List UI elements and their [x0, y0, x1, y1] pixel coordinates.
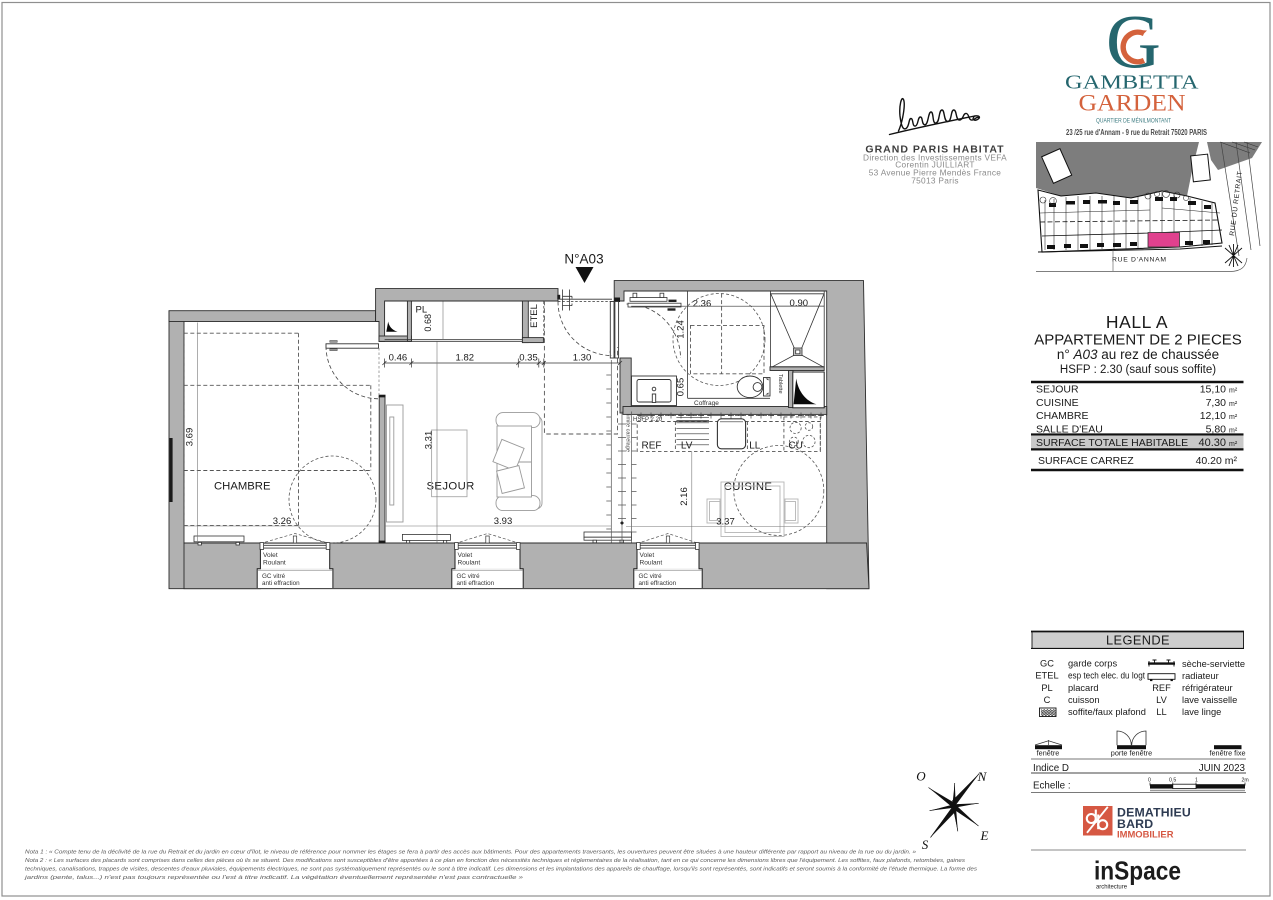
svg-text:esp tech elec. du logt: esp tech elec. du logt — [1068, 671, 1145, 681]
svg-text:SURFACE TOTALE HABITABLE: SURFACE TOTALE HABITABLE — [1036, 437, 1188, 449]
svg-text:LL: LL — [749, 441, 761, 452]
svg-text:0.46: 0.46 — [389, 353, 408, 364]
svg-text:0: 0 — [1148, 778, 1151, 784]
svg-text:LEGENDE: LEGENDE — [1106, 633, 1170, 648]
svg-text:CUISINE: CUISINE — [724, 481, 773, 493]
svg-text:soffite/faux plafond: soffite/faux plafond — [1068, 707, 1146, 717]
svg-text:RUE D'ANNAM: RUE D'ANNAM — [1112, 257, 1167, 264]
svg-text:limite carrelage: limite carrelage — [625, 414, 631, 452]
svg-text:ETEL: ETEL — [1035, 671, 1058, 681]
svg-text:0.35: 0.35 — [519, 353, 538, 364]
svg-text:REF: REF — [642, 441, 662, 452]
svg-text:techniques, canalisations, tra: techniques, canalisations, trappes de vi… — [25, 867, 977, 873]
svg-text:Volet: Volet — [263, 552, 278, 559]
svg-text:SURFACE CARREZ: SURFACE CARREZ — [1038, 455, 1134, 467]
svg-text:3.93: 3.93 — [494, 516, 513, 527]
svg-text:cuisson: cuisson — [1068, 695, 1100, 705]
svg-text:Volet: Volet — [640, 552, 655, 559]
svg-text:LV: LV — [1156, 695, 1167, 705]
svg-text:Echelle :: Echelle : — [1033, 781, 1071, 792]
svg-text:porte fenêtre: porte fenêtre — [1111, 749, 1152, 758]
svg-text:réfrigérateur: réfrigérateur — [1182, 683, 1233, 693]
svg-text:m²: m² — [1229, 401, 1238, 408]
svg-text:15,10: 15,10 — [1200, 384, 1226, 396]
svg-text:40.20 m²: 40.20 m² — [1196, 455, 1238, 467]
svg-text:GC vitré: GC vitré — [639, 573, 663, 580]
svg-text:2.16: 2.16 — [679, 487, 690, 506]
svg-text:placard: placard — [1068, 683, 1099, 693]
svg-text:JUIN 2023: JUIN 2023 — [1199, 763, 1246, 774]
svg-text:0.65: 0.65 — [675, 378, 686, 397]
svg-text:N°A03: N°A03 — [564, 252, 603, 267]
svg-text:anti effraction: anti effraction — [639, 580, 677, 587]
svg-text:Nota 2 : « Les surfaces des pl: Nota 2 : « Les surfaces des placards son… — [25, 858, 965, 864]
svg-text:Roulant: Roulant — [263, 559, 286, 566]
svg-text:1.24: 1.24 — [675, 320, 686, 339]
svg-text:GC: GC — [1040, 658, 1054, 668]
svg-text:7,30: 7,30 — [1206, 397, 1227, 409]
svg-text:m²: m² — [1229, 427, 1238, 434]
svg-text:anti effraction: anti effraction — [457, 580, 495, 587]
svg-text:ETEL: ETEL — [529, 304, 540, 328]
svg-text:fenêtre: fenêtre — [1037, 749, 1060, 758]
svg-text:CUISINE: CUISINE — [1036, 397, 1079, 409]
svg-text:3.69: 3.69 — [185, 428, 196, 447]
svg-text:E: E — [980, 828, 989, 843]
svg-text:3.31: 3.31 — [424, 431, 435, 450]
svg-text:sèche-serviette: sèche-serviette — [1182, 659, 1245, 669]
svg-text:Coffrage: Coffrage — [694, 400, 719, 407]
svg-text:Nota 1 : « Compte tenu de la d: Nota 1 : « Compte tenu de la déclivité d… — [25, 850, 917, 856]
svg-text:O: O — [916, 769, 926, 784]
svg-text:C: C — [1044, 695, 1051, 705]
svg-text:Tablette: Tablette — [777, 374, 783, 394]
svg-text:APPARTEMENT DE 2 PIECES: APPARTEMENT DE 2 PIECES — [1034, 332, 1242, 349]
svg-text:0.90: 0.90 — [790, 298, 809, 309]
svg-text:75013 Paris: 75013 Paris — [911, 175, 959, 185]
svg-text:Roulant: Roulant — [640, 559, 663, 566]
svg-text:garde corps: garde corps — [1068, 658, 1117, 668]
svg-text:1.30: 1.30 — [573, 353, 592, 364]
svg-text:2.36: 2.36 — [693, 298, 712, 309]
svg-text:SEJOUR: SEJOUR — [1036, 384, 1079, 396]
svg-text:n° A03 au rez de chaussée: n° A03 au rez de chaussée — [1057, 347, 1219, 362]
svg-text:3.26: 3.26 — [273, 516, 292, 527]
svg-text:Indice D: Indice D — [1033, 763, 1069, 774]
svg-text:1.82: 1.82 — [456, 353, 475, 364]
svg-text:S: S — [922, 837, 929, 852]
svg-text:anti effraction: anti effraction — [262, 580, 300, 587]
svg-text:GARDEN: GARDEN — [1079, 91, 1186, 116]
svg-text:Volet: Volet — [458, 552, 473, 559]
svg-text:QUARTIER DE MÉNILMONTANT: QUARTIER DE MÉNILMONTANT — [1096, 116, 1171, 125]
svg-text:GC vitré: GC vitré — [457, 573, 481, 580]
svg-text:HSFP 2.20: HSFP 2.20 — [633, 417, 663, 423]
svg-text:3.37: 3.37 — [716, 517, 735, 528]
svg-text:N: N — [977, 769, 988, 784]
svg-text:lave linge: lave linge — [1182, 707, 1221, 717]
svg-text:LV: LV — [681, 441, 693, 452]
svg-text:HSFP : 2.30 (sauf sous soffite: HSFP : 2.30 (sauf sous soffite) — [1060, 364, 1216, 376]
svg-text:CHAMBRE: CHAMBRE — [214, 481, 271, 493]
svg-text:12,10: 12,10 — [1200, 410, 1226, 422]
svg-text:fenêtre fixe: fenêtre fixe — [1209, 749, 1245, 758]
svg-text:PL: PL — [416, 305, 428, 316]
svg-text:HALL A: HALL A — [1106, 312, 1168, 332]
svg-text:GC vitré: GC vitré — [262, 573, 286, 580]
svg-text:m²: m² — [1229, 388, 1238, 395]
svg-text:Roulant: Roulant — [458, 559, 481, 566]
svg-text:23 /25 rue d'Annam - 9 rue du: 23 /25 rue d'Annam - 9 rue du Retrait 75… — [1066, 128, 1207, 137]
svg-text:0.68: 0.68 — [423, 314, 433, 332]
svg-text:SEJOUR: SEJOUR — [427, 481, 475, 493]
svg-text:40.30: 40.30 — [1198, 437, 1226, 449]
svg-text:architecture: architecture — [1096, 884, 1127, 891]
svg-text:inSpace: inSpace — [1094, 856, 1181, 886]
svg-text:PL: PL — [1041, 683, 1052, 693]
svg-text:CU: CU — [788, 441, 802, 452]
svg-text:jardins (pente, talus...) n'es: jardins (pente, talus...) n'est pas touj… — [24, 875, 524, 881]
svg-text:lave vaisselle: lave vaisselle — [1182, 695, 1237, 705]
svg-text:1: 1 — [1195, 778, 1198, 784]
svg-text:REF: REF — [1152, 683, 1171, 693]
svg-text:radiateur: radiateur — [1182, 671, 1219, 681]
svg-text:IMMOBILIER: IMMOBILIER — [1117, 829, 1174, 839]
svg-text:LL: LL — [1156, 707, 1166, 717]
svg-text:CHAMBRE: CHAMBRE — [1036, 410, 1089, 422]
svg-text:m²: m² — [1229, 414, 1238, 421]
svg-text:m²: m² — [1229, 441, 1238, 448]
